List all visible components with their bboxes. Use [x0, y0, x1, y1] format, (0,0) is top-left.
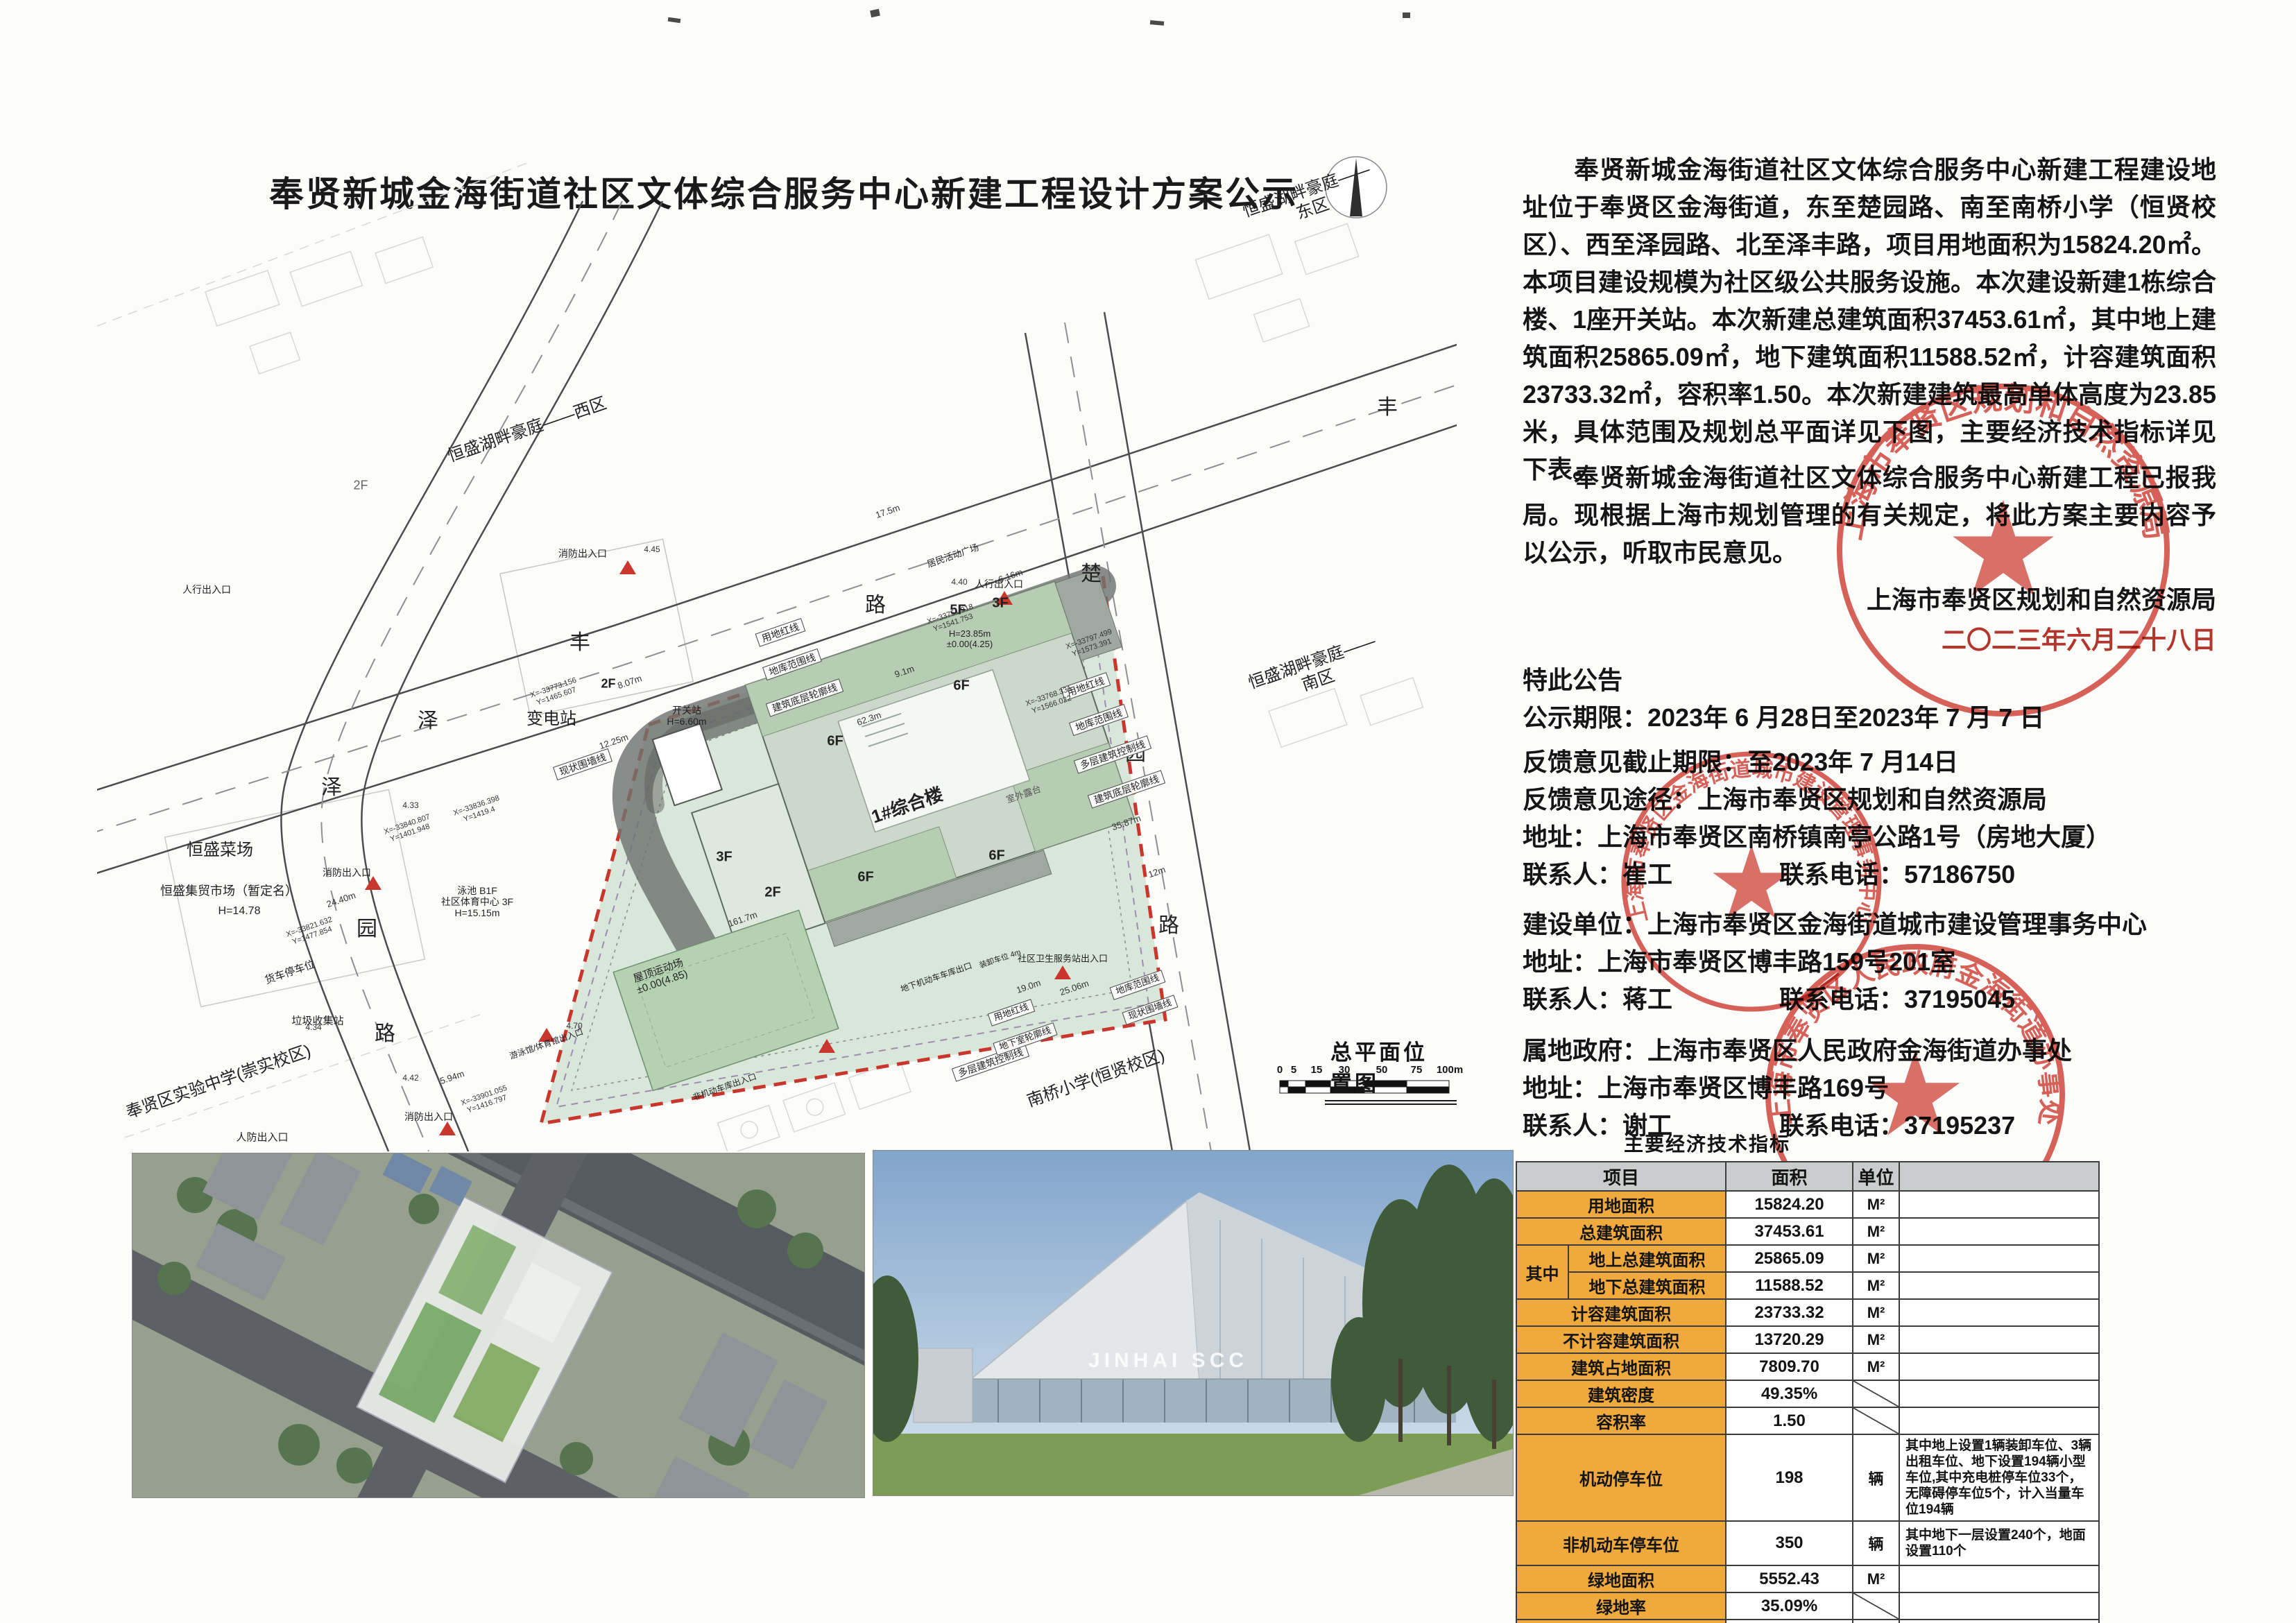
notice-page: 奉贤新城金海街道社区文体综合服务中心新建工程设计方案公示: [0, 0, 2296, 1623]
building-rendering: JINHAI SCC: [873, 1150, 1514, 1496]
row-unit: M²: [1853, 1353, 1899, 1380]
row-unit: M²: [1853, 1218, 1899, 1245]
row-value: 5552.43: [1726, 1565, 1853, 1592]
row-label: 用地面积: [1516, 1191, 1726, 1218]
row-value: 198: [1726, 1434, 1853, 1521]
scan-artifact: [1150, 20, 1164, 26]
aerial-rendering: [132, 1153, 865, 1498]
scan-artifact: [1403, 12, 1410, 18]
row-value: 35.09%: [1726, 1592, 1853, 1620]
row-note: [1899, 1592, 2099, 1620]
scan-artifact: [668, 17, 681, 23]
row-value: 37453.61: [1726, 1218, 1853, 1245]
row-label: 总建筑面积: [1516, 1218, 1726, 1245]
row-value: 15824.20: [1726, 1191, 1853, 1218]
row-note: [1899, 1245, 2099, 1272]
row-value: 23733.32: [1726, 1299, 1853, 1326]
row-note: [1899, 1326, 2099, 1353]
slash-cell: [1853, 1407, 1899, 1434]
scale-tick: 0: [1277, 1064, 1283, 1076]
row-label: 机动停车位: [1516, 1434, 1726, 1521]
scale-tick: 5: [1291, 1064, 1296, 1076]
row-unit: M²: [1853, 1326, 1899, 1353]
row-label: 不计容建筑面积: [1516, 1326, 1726, 1353]
row-note: [1899, 1191, 2099, 1218]
scale-tick: 100m: [1437, 1064, 1463, 1076]
row-label: 非机动车停车位: [1516, 1521, 1726, 1565]
row-note: [1899, 1565, 2099, 1592]
row-value: 25865.09: [1726, 1245, 1853, 1272]
row-label: 绿地面积: [1516, 1565, 1726, 1592]
row-value: 11588.52: [1726, 1272, 1853, 1299]
site-plan-map: 总平面位置图 0 5 15 30 50 75 100m 泽丰路丰泽园路楚园路恒盛…: [97, 97, 1457, 1151]
row-label: 容积率: [1516, 1407, 1726, 1434]
site-plan-drawing: [97, 97, 1457, 1151]
scale-tick: 15: [1311, 1064, 1323, 1076]
scale-tick: 75: [1411, 1064, 1423, 1076]
economic-indicators-table: 项目 面积 单位 用地面积15824.20M² 总建筑面积37453.61M² …: [1516, 1161, 2100, 1623]
row-label: 建筑密度: [1516, 1380, 1726, 1407]
row-unit: M²: [1853, 1565, 1899, 1592]
row-label: 围墙: [1516, 1620, 1726, 1623]
row-label: 计容建筑面积: [1516, 1299, 1726, 1326]
merge-label: 其中: [1516, 1245, 1568, 1299]
row-value: 7809.70: [1726, 1353, 1853, 1380]
row-unit: M²: [1853, 1299, 1899, 1326]
slash-cell: [1853, 1380, 1899, 1407]
col-header-area: 面积: [1726, 1162, 1853, 1191]
row-note: [1899, 1620, 2099, 1623]
row-note: 其中地上设置1辆装卸车位、3辆出租车位、地下设置194辆小型车位,其中充电桩停车…: [1899, 1434, 2099, 1521]
scale-tick: 50: [1376, 1064, 1388, 1076]
svg-text:★: ★: [1706, 827, 1797, 939]
row-unit: M²: [1853, 1272, 1899, 1299]
col-header-unit: 单位: [1853, 1162, 1899, 1191]
table-title: 主要经济技术指标: [1516, 1129, 1899, 1157]
row-note: [1899, 1218, 2099, 1245]
row-value: 1.50: [1726, 1407, 1853, 1434]
north-arrow-icon: [1326, 157, 1387, 218]
row-note: [1899, 1272, 2099, 1299]
slash-cell: [1853, 1592, 1899, 1620]
row-note: 其中地下一层设置240个，地面设置110个: [1899, 1521, 2099, 1565]
row-note: [1899, 1380, 2099, 1407]
row-value: 49.35%: [1726, 1380, 1853, 1407]
row-note: [1899, 1353, 2099, 1380]
col-header-note: [1899, 1162, 2099, 1191]
row-note: [1899, 1407, 2099, 1434]
row-note: [1899, 1299, 2099, 1326]
svg-text:★: ★: [1944, 476, 2062, 624]
row-unit: M²: [1853, 1191, 1899, 1218]
scale-tick: 30: [1339, 1064, 1351, 1076]
row-unit: M²: [1853, 1245, 1899, 1272]
row-label: 地下总建筑面积: [1568, 1272, 1726, 1299]
building-sign-text: JINHAI SCC: [1088, 1349, 1248, 1372]
row-unit: M: [1853, 1620, 1899, 1623]
planning-bureau-seal: ★ 上海市奉贤区规划和自然资源局: [1830, 380, 2177, 720]
row-label: 建筑占地面积: [1516, 1353, 1726, 1380]
indicators-table-section: 主要经济技术指标 项目 面积 单位 用地面积15824.20M² 总建筑面积37…: [1516, 1129, 2100, 1623]
col-header-item: 项目: [1516, 1162, 1726, 1191]
row-value: 0.00: [1726, 1620, 1853, 1623]
row-unit: 辆: [1853, 1434, 1899, 1521]
row-label: 地上总建筑面积: [1568, 1245, 1726, 1272]
scan-artifact: [870, 9, 880, 17]
row-value: 13720.29: [1726, 1326, 1853, 1353]
row-label: 绿地率: [1516, 1592, 1726, 1620]
row-value: 350: [1726, 1521, 1853, 1565]
row-unit: 辆: [1853, 1521, 1899, 1565]
